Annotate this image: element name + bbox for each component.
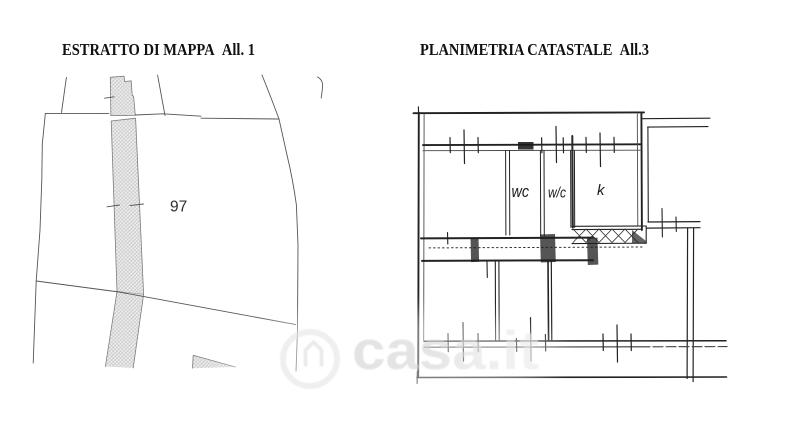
svg-text:wc: wc <box>512 182 530 201</box>
svg-text:casa.it: casa.it <box>352 319 539 381</box>
svg-text:PLANIMETRIA CATASTALE All.3: PLANIMETRIA CATASTALE All.3 <box>420 40 649 59</box>
svg-text:97: 97 <box>170 199 187 216</box>
svg-text:w/c: w/c <box>548 186 567 202</box>
svg-text:ESTRATTO DI MAPPA All. 1: ESTRATTO DI MAPPA All. 1 <box>62 40 255 59</box>
